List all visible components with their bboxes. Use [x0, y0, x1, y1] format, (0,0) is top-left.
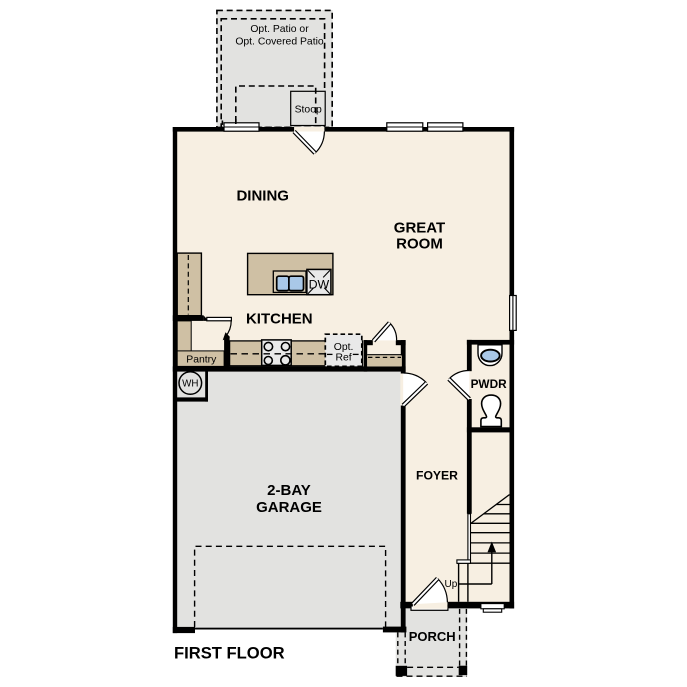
svg-text:Ref: Ref	[336, 353, 352, 364]
svg-text:2-BAY: 2-BAY	[267, 482, 311, 499]
svg-text:DINING: DINING	[236, 187, 289, 204]
svg-text:FOYER: FOYER	[416, 468, 458, 482]
svg-text:PWDR: PWDR	[471, 377, 508, 391]
svg-text:GARAGE: GARAGE	[256, 499, 322, 516]
svg-text:Up: Up	[445, 579, 458, 590]
svg-text:WH: WH	[182, 378, 198, 389]
svg-text:Opt.: Opt.	[334, 342, 354, 353]
svg-text:Pantry: Pantry	[186, 354, 217, 365]
svg-text:Opt. Patio or: Opt. Patio or	[250, 24, 309, 35]
svg-text:PORCH: PORCH	[409, 629, 456, 644]
svg-text:Stoop: Stoop	[295, 104, 322, 115]
svg-text:DW: DW	[309, 277, 330, 291]
svg-text:Opt. Covered Patio: Opt. Covered Patio	[235, 36, 324, 47]
svg-text:KITCHEN: KITCHEN	[246, 311, 313, 328]
svg-text:ROOM: ROOM	[396, 236, 443, 253]
svg-text:GREAT: GREAT	[394, 219, 445, 236]
svg-text:FIRST FLOOR: FIRST FLOOR	[174, 643, 285, 662]
